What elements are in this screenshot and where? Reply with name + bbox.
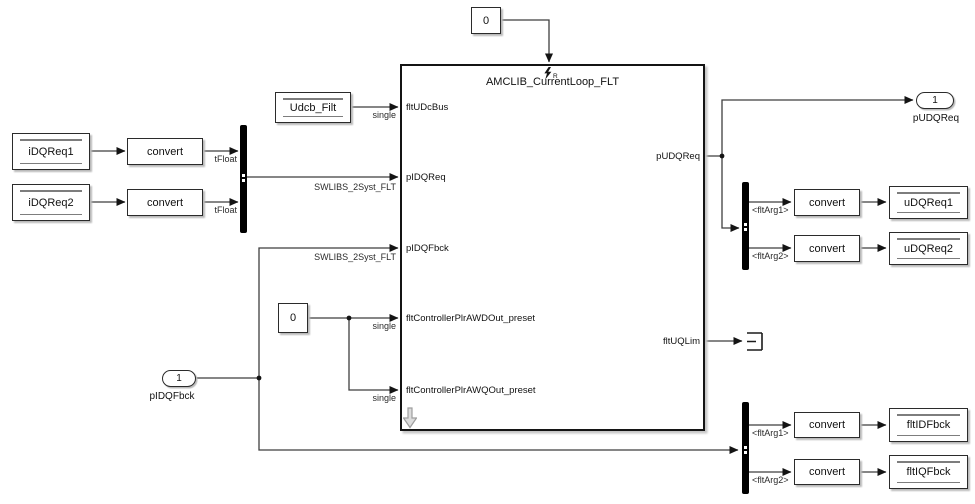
port-label-pidqfbck: pIDQFbck — [406, 243, 449, 254]
reset-port-label: R — [553, 73, 558, 80]
tag-label-udcb-filt: Udcb_Filt — [290, 102, 336, 114]
tag-label-idqreq2: iDQReq2 — [28, 197, 73, 209]
wire-label-fltarg2: <fltArg2> — [752, 251, 789, 261]
convert-label: convert — [809, 419, 845, 431]
tag-block-fltiqfbck[interactable]: fltIQFbck — [889, 455, 968, 489]
open-subsystem-arrow-icon[interactable] — [403, 407, 417, 434]
lightning-icon — [543, 67, 552, 81]
wire-label-fltarg1: <fltArg1> — [752, 428, 789, 438]
convert-block-3[interactable]: convert — [794, 189, 860, 216]
port-label-awqout-preset: fltControllerPlrAWQOut_preset — [406, 385, 536, 396]
outport-caption: pUDQReq — [913, 113, 959, 124]
port-label-awdout-preset: fltControllerPlrAWDOut_preset — [406, 313, 535, 324]
convert-label: convert — [147, 146, 183, 158]
mux-notch — [744, 451, 747, 454]
wire-label-bus-type: SWLIBS_2Syst_FLT — [314, 252, 396, 262]
convert-block-5[interactable]: convert — [794, 412, 860, 438]
constant-reset[interactable]: 0 — [471, 7, 501, 34]
convert-label: convert — [147, 197, 183, 209]
demux-block-bottom[interactable] — [742, 402, 749, 494]
demux-block-top[interactable] — [742, 182, 749, 270]
wire-label-fltarg1: <fltArg1> — [752, 205, 789, 215]
mux-notch — [744, 446, 747, 449]
inport-pidqfbck[interactable]: 1 — [162, 370, 196, 387]
port-label-pidqreq: pIDQReq — [406, 172, 446, 183]
wire-label-single: single — [372, 393, 396, 403]
port-label-pudqreq: pUDQReq — [656, 151, 700, 162]
wire-label-bus-type: SWLIBS_2Syst_FLT — [314, 182, 396, 192]
wire-label-single: single — [372, 110, 396, 120]
inport-caption: pIDQFbck — [149, 391, 194, 402]
convert-label: convert — [809, 197, 845, 209]
tag-label-udqreq2: uDQReq2 — [904, 243, 953, 255]
mux-notch — [744, 228, 747, 231]
tag-label-idqreq1: iDQReq1 — [28, 146, 73, 158]
mux-block[interactable] — [240, 125, 247, 233]
wire-label-tfloat: tFloat — [214, 154, 237, 164]
mux-notch — [744, 223, 747, 226]
tag-label-udqreq1: uDQReq1 — [904, 197, 953, 209]
tag-block-udqreq1[interactable]: uDQReq1 — [889, 186, 968, 219]
mux-notch — [242, 179, 245, 182]
mux-notch — [242, 174, 245, 177]
port-label-fltuqlim: fltUQLim — [663, 336, 700, 347]
tag-label-fltiqfbck: fltIQFbck — [906, 466, 950, 478]
simulink-canvas: AMCLIB_CurrentLoop_FLT R fltUDcBus pIDQR… — [0, 0, 975, 504]
tag-label-fltidfbck: fltIDFbck — [907, 419, 950, 431]
tag-block-udqreq2[interactable]: uDQReq2 — [889, 232, 968, 265]
convert-block-4[interactable]: convert — [794, 235, 860, 262]
convert-label: convert — [809, 243, 845, 255]
tag-block-idqreq1[interactable]: iDQReq1 — [12, 133, 90, 170]
terminator-block[interactable] — [747, 333, 762, 350]
convert-block-6[interactable]: convert — [794, 459, 860, 485]
port-label-fltudcbus: fltUDcBus — [406, 102, 448, 113]
reset-port-icon: R — [543, 67, 558, 81]
tag-block-idqreq2[interactable]: iDQReq2 — [12, 184, 90, 221]
constant-preset[interactable]: 0 — [278, 303, 308, 333]
inport-number: 1 — [176, 373, 182, 384]
convert-label: convert — [809, 466, 845, 478]
tag-block-udcb-filt[interactable]: Udcb_Filt — [275, 92, 351, 123]
convert-block-2[interactable]: convert — [127, 189, 203, 216]
convert-block-1[interactable]: convert — [127, 138, 203, 165]
constant-preset-value: 0 — [290, 312, 296, 324]
wire-label-single: single — [372, 321, 396, 331]
constant-reset-value: 0 — [483, 15, 489, 27]
outport-pudqreq[interactable]: 1 — [916, 92, 954, 109]
wire-label-fltarg2: <fltArg2> — [752, 475, 789, 485]
tag-block-fltidfbck[interactable]: fltIDFbck — [889, 408, 968, 442]
outport-number: 1 — [932, 95, 938, 106]
wire-label-tfloat: tFloat — [214, 205, 237, 215]
